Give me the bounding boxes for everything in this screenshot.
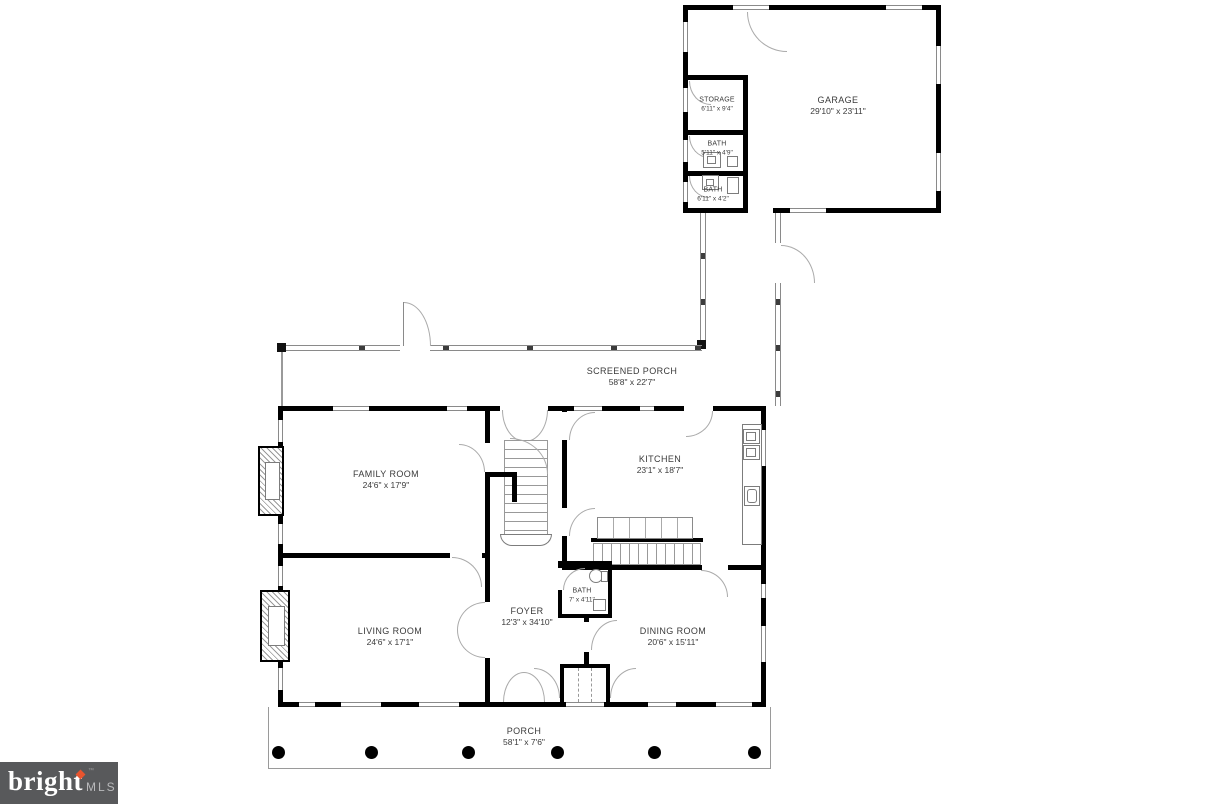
door-arc: [525, 410, 548, 442]
room-name: FOYER: [501, 606, 552, 617]
porch-column: [551, 746, 564, 759]
window: [333, 406, 369, 411]
wall-segment: [560, 664, 610, 668]
room-name: DINING ROOM: [640, 626, 706, 637]
window: [936, 153, 941, 191]
porch-column: [272, 746, 285, 759]
room-dims: 58'1" x 7'6": [503, 737, 545, 748]
screen-wall: [281, 352, 283, 406]
room-label-bath-garage-2: BATH 6'11" x 4'2": [697, 187, 729, 204]
door-arc: [569, 412, 595, 440]
room-label-foyer: FOYER 12'3" x 34'10": [501, 606, 552, 628]
logo-trademark: ™: [88, 768, 94, 774]
porch-column: [648, 746, 661, 759]
stair-bullnose: [500, 534, 552, 546]
door-arc: [457, 602, 485, 630]
toilet-tank: [601, 571, 608, 582]
window: [683, 182, 688, 202]
window: [419, 702, 459, 707]
room-name: LIVING ROOM: [358, 626, 422, 637]
window: [648, 702, 676, 707]
room-label-screened-porch: SCREENED PORCH 58'8" x 22'7": [587, 366, 678, 388]
sink-basin: [706, 179, 714, 186]
wall-segment: [606, 664, 610, 706]
room-name: BATH: [697, 187, 729, 196]
window: [566, 702, 604, 707]
porch-edge: [268, 768, 771, 769]
room-dims: 20'6" x 15'11": [640, 637, 706, 648]
window: [733, 5, 769, 10]
room-dims: 24'6" x 17'1": [358, 637, 422, 648]
screen-wall: [281, 345, 702, 351]
screen-wall: [775, 213, 781, 406]
wall-segment: [512, 472, 517, 502]
room-dims: 6'11" x 4'2": [697, 195, 729, 203]
room-label-living-room: LIVING ROOM 24'6" x 17'1": [358, 626, 422, 648]
wall-segment: [562, 440, 567, 508]
door-arc: [503, 672, 524, 702]
wall-segment: [485, 472, 490, 602]
appliance: [746, 448, 756, 457]
door-opening: [558, 568, 562, 590]
window: [716, 702, 752, 707]
room-dims: 23'1" x 18'7": [637, 465, 684, 476]
wall-segment: [608, 561, 612, 618]
room-label-family-room: FAMILY ROOM 24'6" x 17'9": [353, 469, 419, 491]
logo-text-mls: MLS: [86, 780, 117, 794]
window: [683, 140, 688, 162]
room-dims: 29'10" x 23'11": [810, 106, 865, 117]
wall-segment: [278, 553, 450, 558]
sink-basin: [747, 489, 757, 503]
room-name: BATH: [701, 141, 733, 150]
door-arc: [701, 570, 728, 597]
window: [574, 406, 602, 411]
room-label-kitchen: KITCHEN 23'1" x 18'7": [637, 454, 684, 476]
brightmls-watermark: bright ™ MLS: [0, 762, 118, 804]
porch-column: [748, 746, 761, 759]
window: [278, 420, 283, 442]
wall-segment: [562, 536, 567, 561]
room-label-storage: STORAGE 6'11" x 9'4": [699, 97, 735, 114]
room-name: FAMILY ROOM: [353, 469, 419, 480]
window: [447, 406, 467, 411]
room-label-bath-main: BATH 7' x 4'11": [569, 588, 595, 605]
window: [886, 5, 922, 10]
wall-segment: [485, 658, 490, 707]
wall-segment: [683, 130, 748, 135]
firebox: [265, 462, 280, 500]
wall-segment: [562, 406, 567, 412]
porch-edge: [268, 707, 269, 769]
window: [683, 88, 688, 112]
window: [278, 524, 283, 544]
closet-line: [591, 668, 592, 702]
wall-segment: [728, 565, 766, 570]
door-arc: [404, 302, 431, 346]
kitchen-island: [597, 517, 693, 539]
wall-segment: [482, 553, 488, 558]
room-label-porch: PORCH 58'1" x 7'6": [503, 726, 545, 748]
window: [299, 702, 315, 707]
door-arc: [459, 444, 485, 472]
window: [341, 702, 381, 707]
window: [683, 22, 688, 52]
appliance: [746, 432, 756, 441]
door-arc: [591, 620, 617, 650]
window: [936, 46, 941, 84]
window: [790, 208, 826, 213]
door-arc: [610, 668, 636, 698]
door-arc: [457, 630, 485, 658]
room-dims: 58'8" x 22'7": [587, 377, 678, 388]
porch-column: [365, 746, 378, 759]
room-name: STORAGE: [699, 97, 735, 106]
room-dims: 12'3" x 34'10": [501, 617, 552, 628]
room-name: GARAGE: [810, 95, 865, 106]
closet-line: [578, 668, 579, 702]
room-dims: 24'6" x 17'9": [353, 480, 419, 491]
room-label-bath-garage-1: BATH 5'11" x 4'9": [701, 141, 733, 158]
room-label-garage: GARAGE 29'10" x 23'11": [810, 95, 865, 117]
door-arc: [452, 557, 482, 587]
screen-wall: [700, 213, 706, 345]
room-name: PORCH: [503, 726, 545, 737]
room-dims: 7' x 4'11": [569, 596, 595, 604]
window: [761, 584, 766, 598]
room-name: KITCHEN: [637, 454, 684, 465]
floor-plan-canvas: GARAGE 29'10" x 23'11" STORAGE 6'11" x 9…: [0, 0, 1205, 804]
door-opening: [747, 208, 773, 213]
room-label-dining-room: DINING ROOM 20'6" x 15'11": [640, 626, 706, 648]
porch-column: [462, 746, 475, 759]
room-dims: 6'11" x 9'4": [699, 105, 735, 113]
wall-segment: [558, 561, 612, 565]
room-dims: 5'11" x 4'9": [701, 149, 733, 157]
shower: [727, 177, 739, 194]
window: [278, 668, 283, 690]
firebox: [268, 606, 285, 646]
door-arc: [686, 411, 713, 437]
wall-segment: [560, 664, 564, 706]
door-arc: [569, 508, 595, 536]
door-arc: [747, 12, 787, 52]
wall-segment: [743, 75, 748, 213]
room-name: BATH: [569, 588, 595, 597]
porch-post: [277, 343, 286, 352]
wall-segment: [485, 406, 490, 443]
wall-segment: [683, 75, 748, 80]
toilet: [727, 156, 738, 167]
wall-segment: [584, 618, 589, 622]
door-arc: [781, 245, 815, 283]
porch-edge: [770, 707, 771, 769]
window: [278, 566, 283, 586]
window: [761, 626, 766, 662]
logo-text-bright: bright: [8, 766, 83, 797]
wall-segment: [488, 472, 514, 477]
window: [640, 406, 654, 411]
room-name: SCREENED PORCH: [587, 366, 678, 377]
